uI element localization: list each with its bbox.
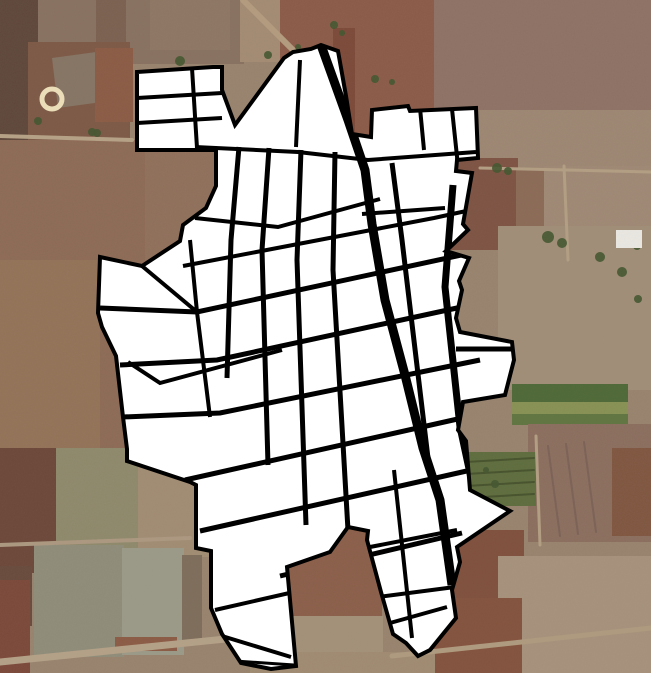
screenshot-root: [0, 0, 651, 673]
satellite-map: [0, 0, 651, 673]
